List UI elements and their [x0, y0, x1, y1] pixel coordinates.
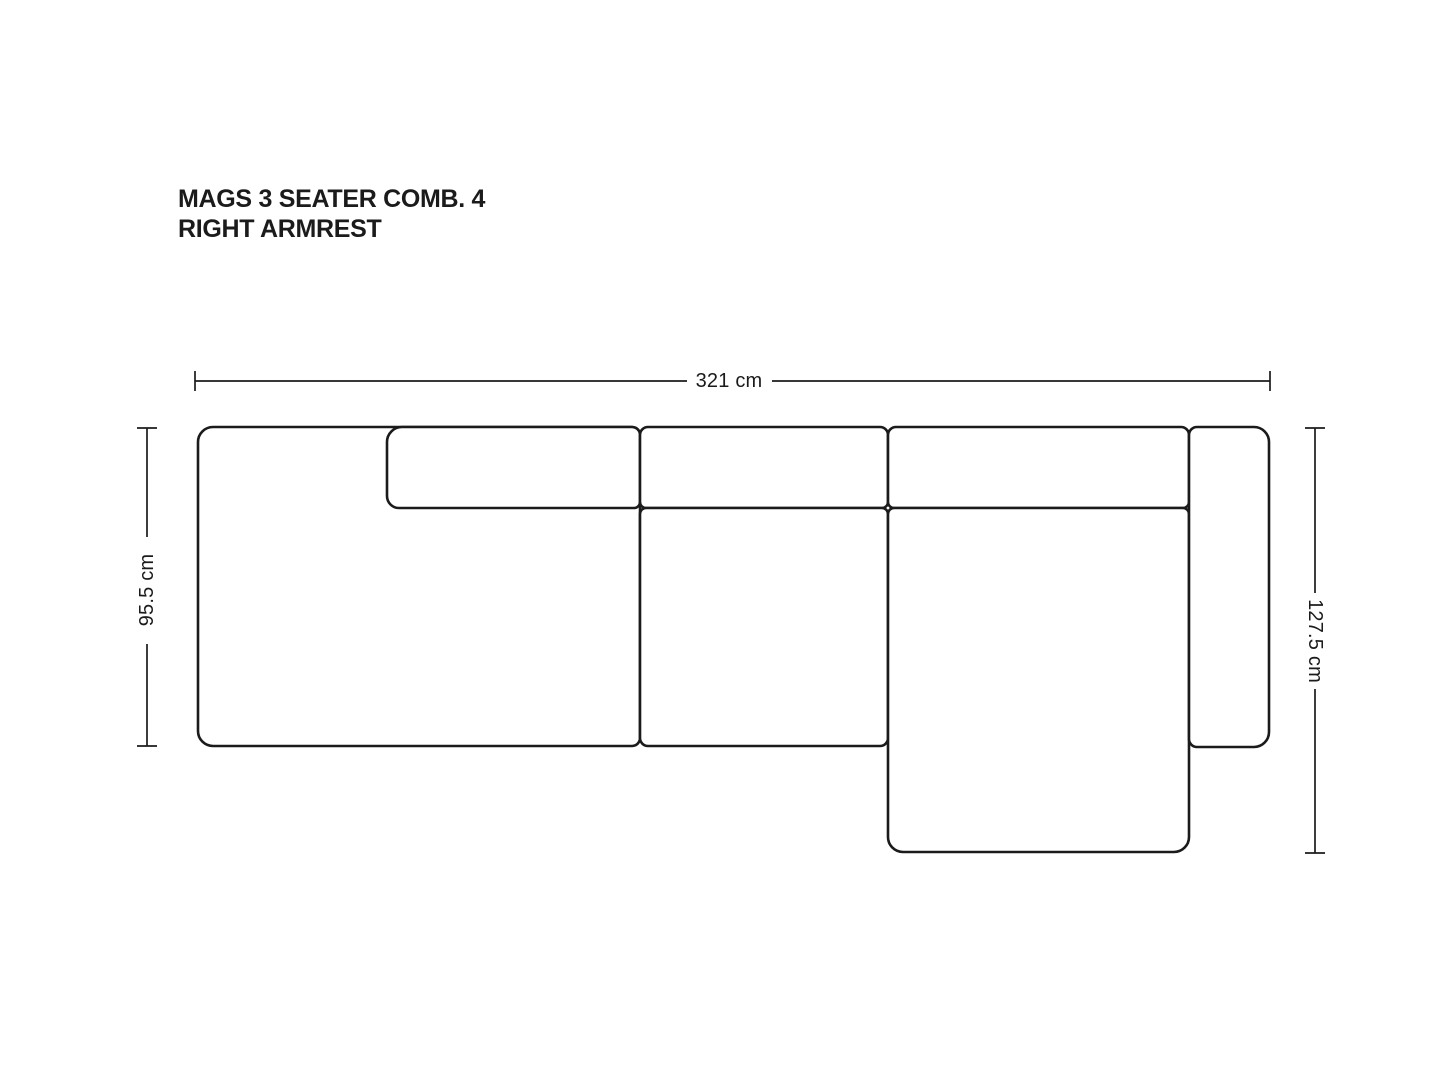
- left-backrest-cushion: [387, 427, 640, 508]
- middle-backrest-cushion: [640, 427, 888, 508]
- width-dimension: 321 cm: [195, 370, 1270, 392]
- sofa-top-view-diagram: 321 cm 95.5 cm 127.5 cm: [0, 0, 1445, 1087]
- sofa-outline: [198, 427, 1269, 852]
- middle-seat-module: [640, 508, 888, 746]
- right-depth-dimension: 127.5 cm: [1304, 428, 1326, 853]
- width-dimension-label: 321 cm: [696, 370, 763, 392]
- right-depth-label: 127.5 cm: [1304, 599, 1326, 683]
- chaise-backrest-cushion: [888, 427, 1189, 508]
- page: MAGS 3 SEATER COMB. 4 RIGHT ARMREST 321 …: [0, 0, 1445, 1087]
- left-depth-label: 95.5 cm: [136, 554, 158, 627]
- left-depth-dimension: 95.5 cm: [136, 428, 158, 746]
- right-armrest: [1189, 427, 1269, 747]
- chaise-longue-module: [888, 508, 1189, 852]
